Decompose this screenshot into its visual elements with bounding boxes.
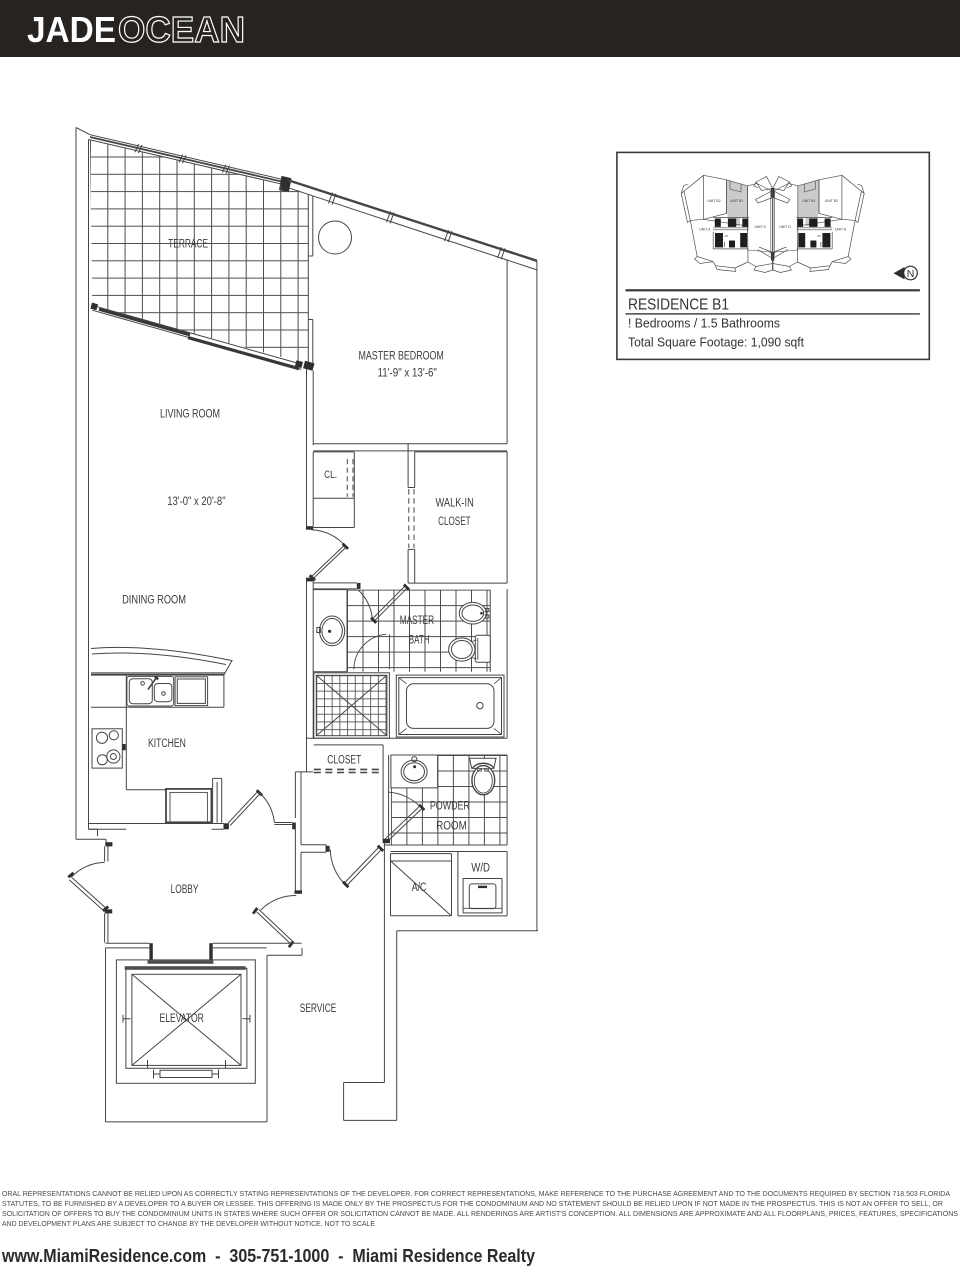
svg-text:UNIT A: UNIT A (699, 227, 711, 231)
svg-text:UNIT B1: UNIT B1 (730, 199, 743, 203)
svg-text:CLOSET: CLOSET (327, 755, 361, 767)
svg-text:TERRACE: TERRACE (168, 239, 208, 251)
svg-text:A/C: A/C (412, 882, 427, 894)
svg-text:STATUTES, TO BE FURNISHED BY A: STATUTES, TO BE FURNISHED BY A DEVELOPER… (2, 1199, 943, 1208)
svg-text:KITCHEN: KITCHEN (148, 738, 186, 750)
svg-text:UNIT B2: UNIT B2 (825, 199, 838, 203)
svg-text:SOLICITATION OF OFFERS TO BUY: SOLICITATION OF OFFERS TO BUY THE CONDOM… (2, 1209, 958, 1218)
svg-text:RESIDENCE B1: RESIDENCE B1 (628, 297, 729, 314)
svg-text:BATH: BATH (409, 635, 430, 647)
svg-text:N: N (907, 268, 915, 280)
svg-text:UNIT B1: UNIT B1 (802, 199, 815, 203)
svg-text:MASTER: MASTER (400, 615, 434, 627)
svg-text:LOBBY: LOBBY (171, 882, 199, 896)
svg-text:www.MiamiResidence.com - 305: www.MiamiResidence.com - 305-751-1000 - … (1, 1245, 535, 1266)
svg-text:AND DEVELOPMENT PLANS ARE SUBJ: AND DEVELOPMENT PLANS ARE SUBJECT TO CHA… (2, 1219, 375, 1228)
svg-text:W/D: W/D (471, 863, 490, 875)
svg-text:ROOM: ROOM (436, 821, 467, 833)
svg-text:LIVING ROOM: LIVING ROOM (160, 407, 220, 421)
svg-text:DINING ROOM: DINING ROOM (122, 593, 186, 607)
svg-text:UNIT B2: UNIT B2 (707, 199, 720, 203)
svg-text:ORAL REPRESENTATIONS CANNOT BE: ORAL REPRESENTATIONS CANNOT BE RELIED UP… (2, 1189, 951, 1198)
svg-text:13'-0" x 20'-8": 13'-0" x 20'-8" (167, 496, 225, 508)
svg-text:11'-9" x 13'-6": 11'-9" x 13'-6" (378, 368, 437, 380)
svg-text:CL.: CL. (324, 469, 337, 481)
svg-text:Total Square Footage: 1,090 sq: Total Square Footage: 1,090 sqft (628, 335, 804, 350)
svg-text:OCEAN: OCEAN (118, 9, 245, 50)
svg-text:! Bedrooms / 1.5 Bathrooms: ! Bedrooms / 1.5 Bathrooms (628, 316, 780, 331)
svg-text:UNIT D: UNIT D (779, 225, 791, 229)
svg-text:JADE: JADE (27, 9, 116, 50)
svg-text:UNIT A: UNIT A (835, 227, 847, 231)
svg-text:POWDER: POWDER (430, 801, 470, 813)
svg-text:CLOSET: CLOSET (438, 516, 471, 528)
svg-text:MASTER BEDROOM: MASTER BEDROOM (359, 349, 444, 363)
svg-text:SERVICE: SERVICE (300, 1003, 337, 1015)
svg-text:ELEVATOR: ELEVATOR (160, 1013, 204, 1025)
svg-text:UNIT D: UNIT D (754, 225, 766, 229)
svg-text:WALK-IN: WALK-IN (436, 498, 474, 510)
